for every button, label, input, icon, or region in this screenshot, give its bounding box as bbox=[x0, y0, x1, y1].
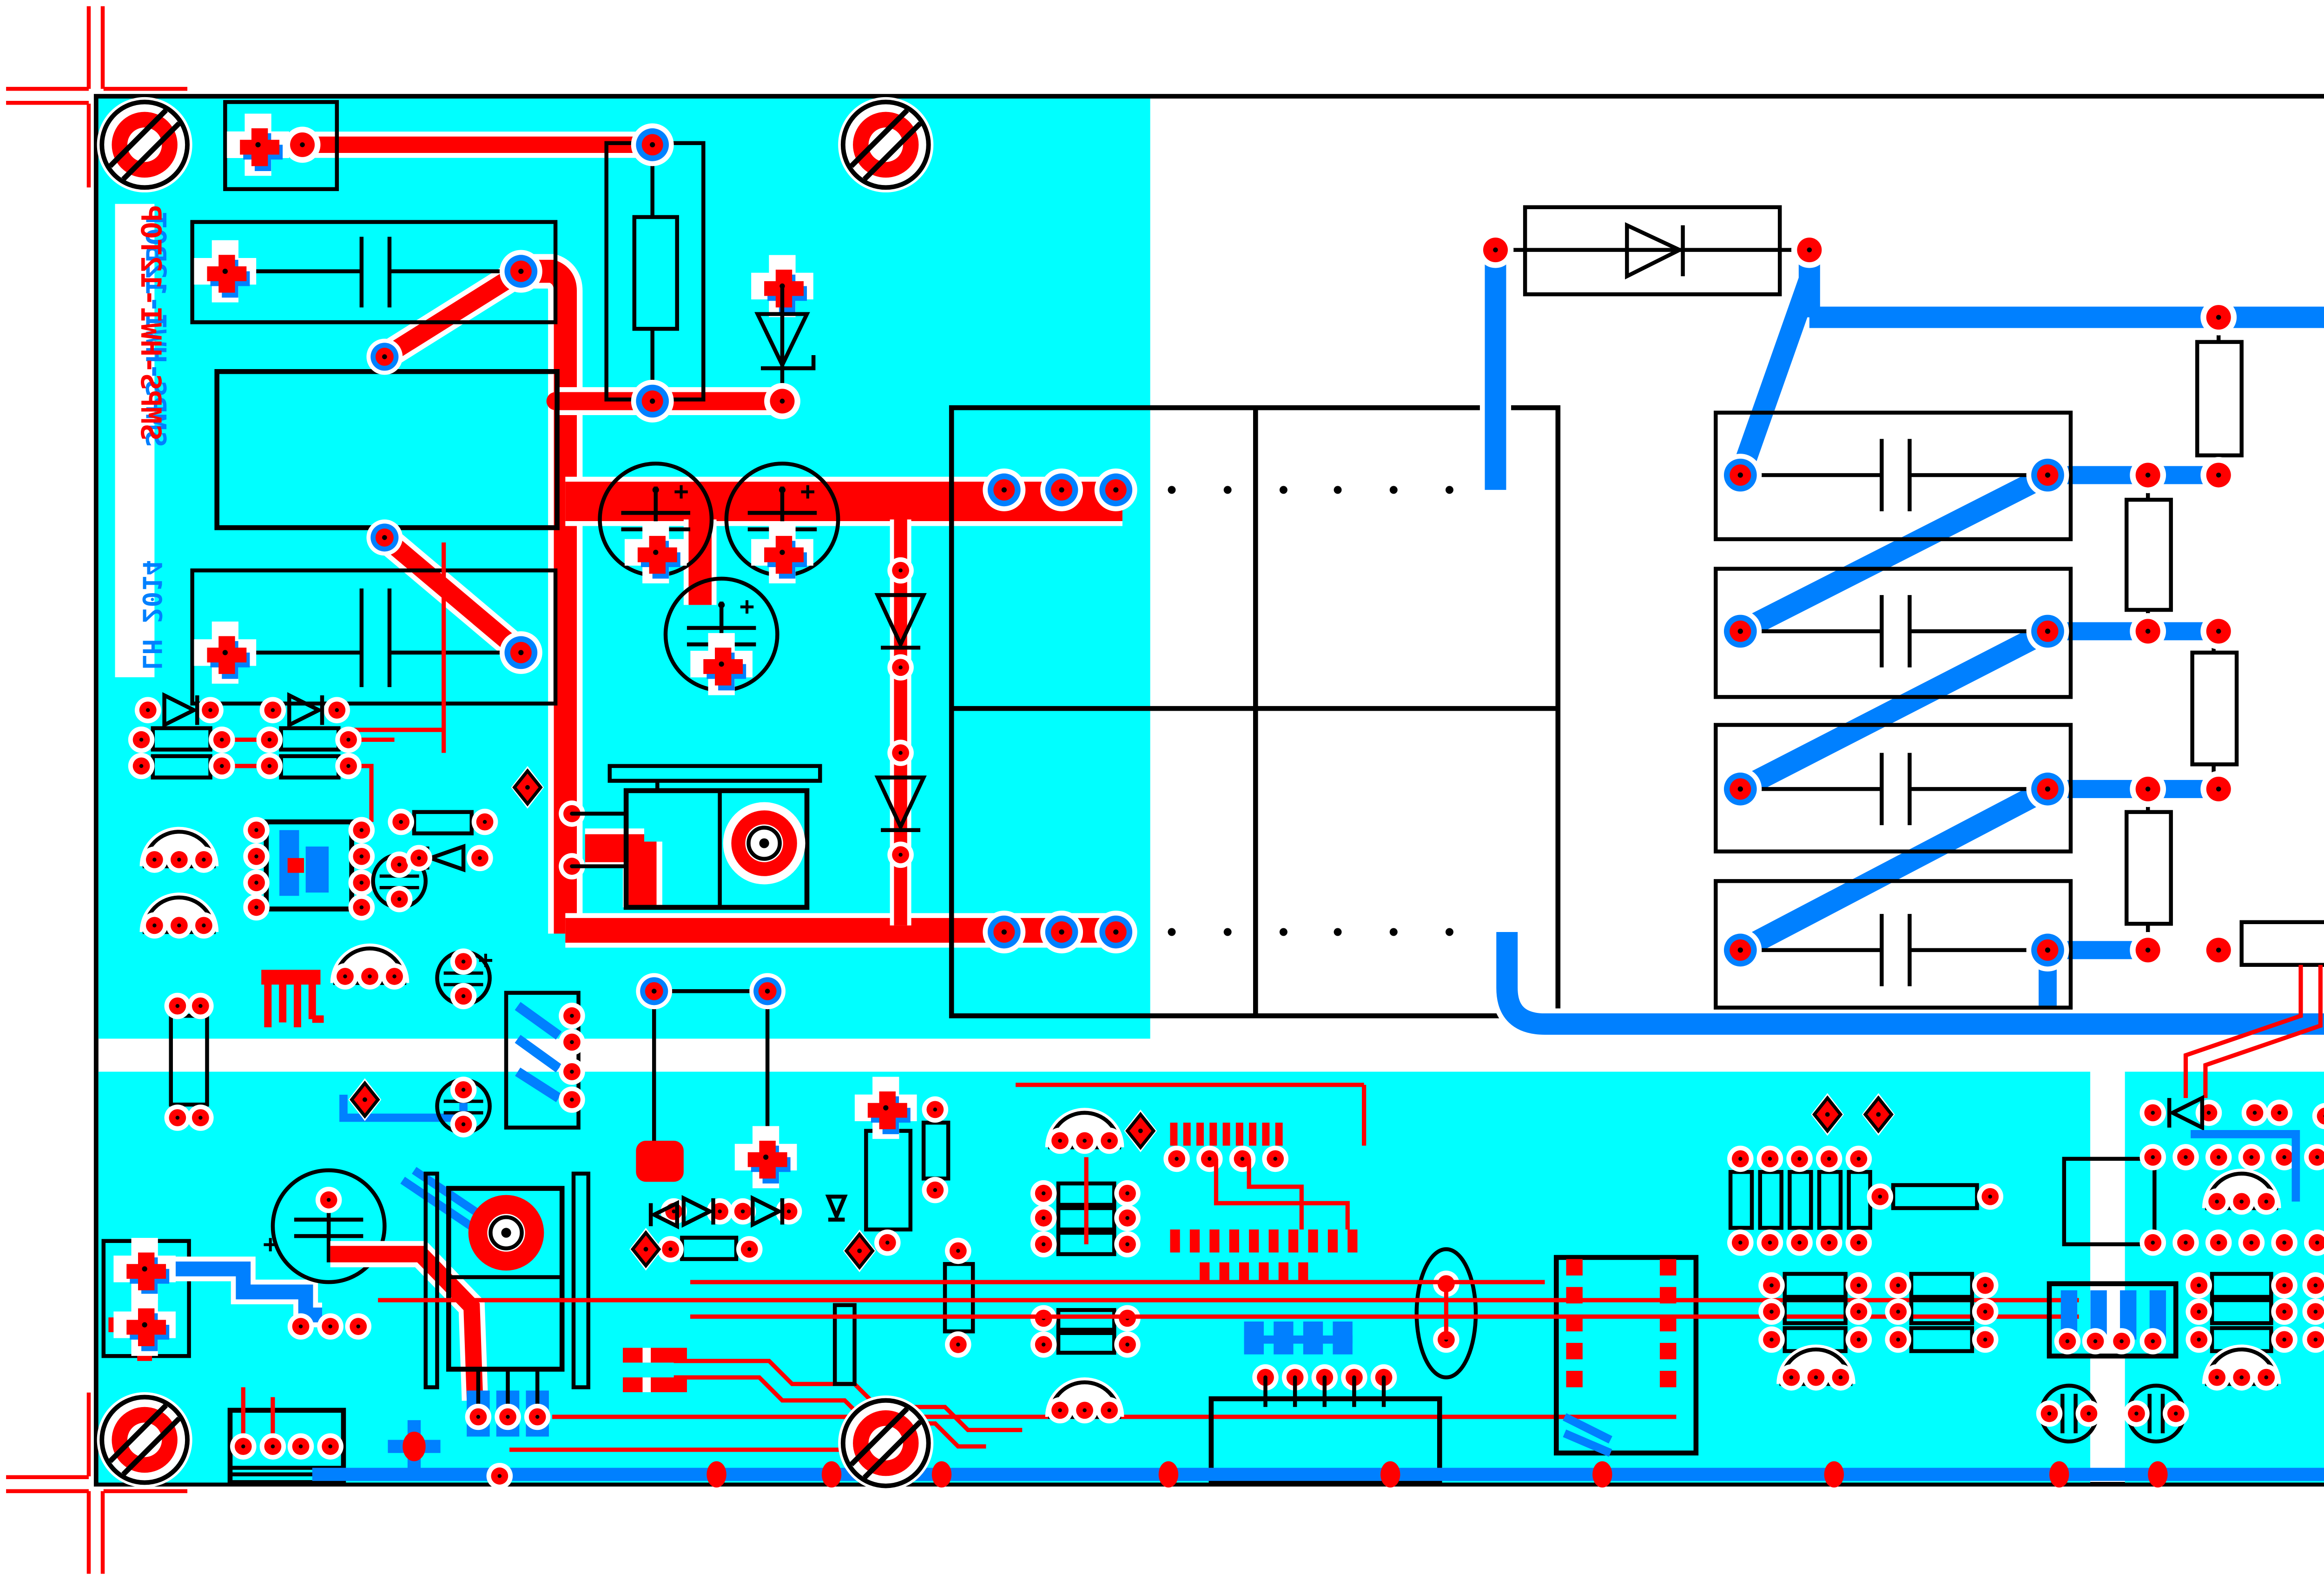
title-block: SMPS-HWI-12BOT SMPS-HWI-12TOP LH 2014 bbox=[134, 205, 172, 671]
pcb-artwork: + bbox=[0, 0, 2324, 1580]
board-author-year: LH 2014 bbox=[137, 560, 167, 670]
board-title-top-layer: SMPS-HWI-12TOP bbox=[134, 205, 167, 441]
